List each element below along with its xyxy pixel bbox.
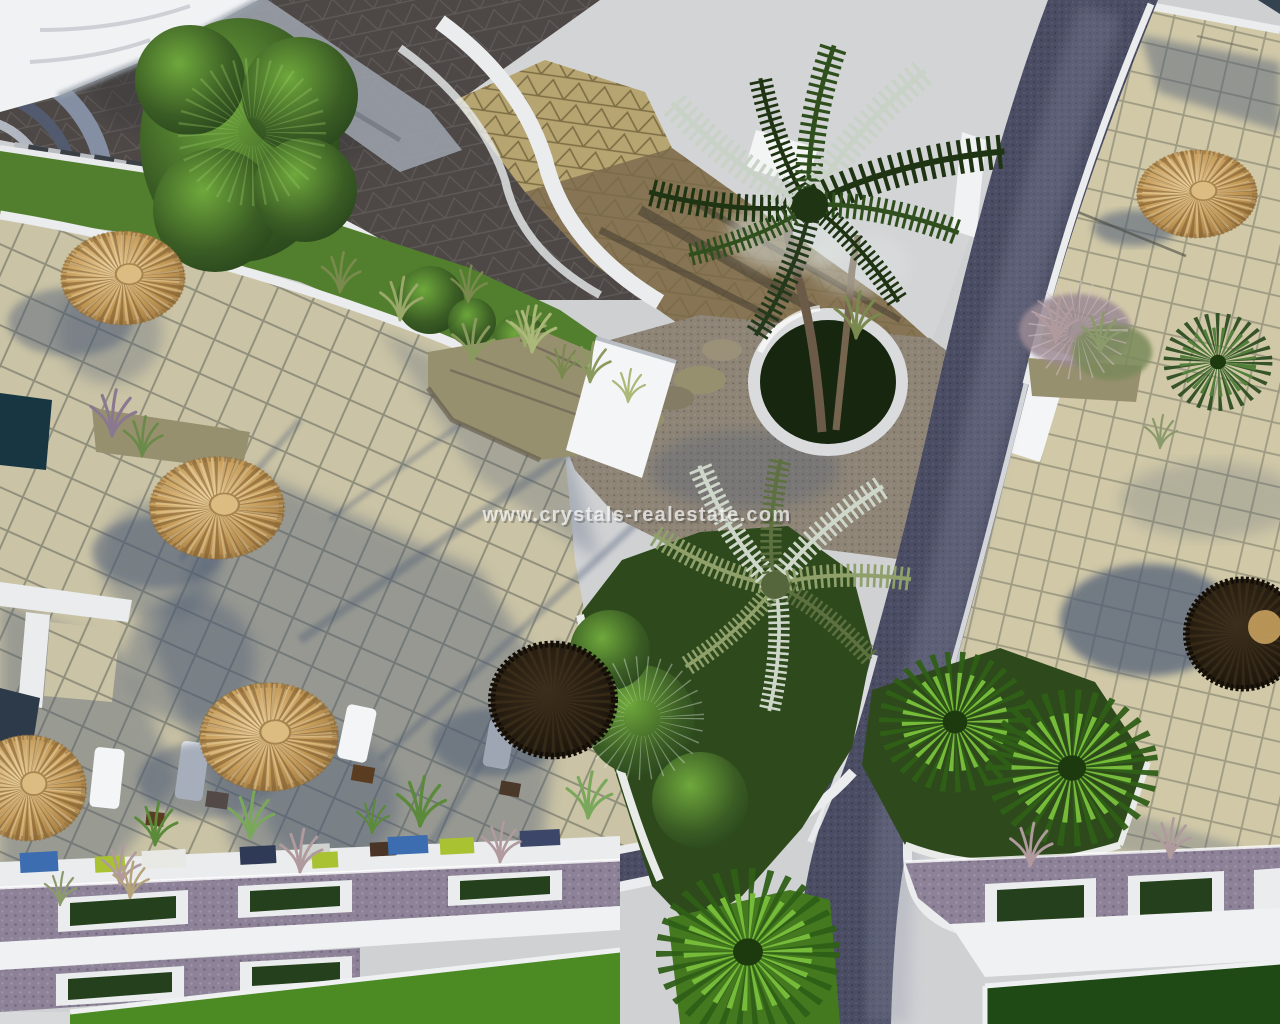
pool-edge bbox=[0, 393, 52, 470]
straw-parasol bbox=[61, 231, 185, 325]
watermark: www.crystals-realestate.com www.crystals… bbox=[482, 504, 794, 528]
large-bush bbox=[135, 18, 358, 272]
sun-lounger bbox=[89, 747, 125, 810]
dark-parasol bbox=[491, 643, 616, 757]
aerial-render-photo: www.crystals-realestate.com www.crystals… bbox=[0, 0, 1280, 1024]
watermark-text: www.crystals-realestate.com bbox=[482, 504, 792, 526]
scene-canvas: www.crystals-realestate.com www.crystals… bbox=[0, 0, 1280, 1024]
